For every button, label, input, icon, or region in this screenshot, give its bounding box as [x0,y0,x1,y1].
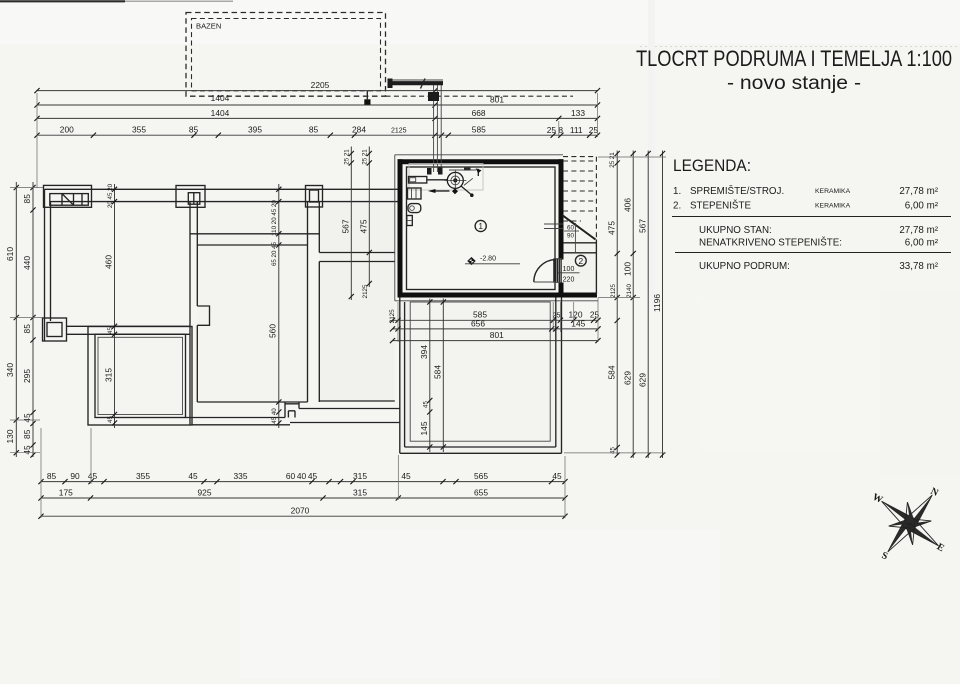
svg-text:335: 335 [234,471,248,481]
svg-text:UKUPNO STAN:: UKUPNO STAN: [699,225,772,236]
svg-text:45: 45 [22,413,32,423]
svg-text:100: 100 [563,266,575,273]
svg-text:6,00 m²: 6,00 m² [905,201,939,212]
svg-text:20 45 20: 20 45 20 [107,183,114,208]
svg-text:315: 315 [104,368,114,382]
svg-text:-2.80: -2.80 [480,256,496,263]
svg-text:145: 145 [419,421,429,435]
svg-text:85: 85 [22,194,32,204]
svg-text:2125: 2125 [610,284,617,298]
svg-text:567: 567 [340,219,350,233]
svg-text:- novo stanje -: - novo stanje - [727,73,861,94]
svg-text:TLOCRT PODRUMA I TEMELJA 1:100: TLOCRT PODRUMA I TEMELJA 1:100 [636,46,952,71]
svg-text:584: 584 [432,365,442,379]
svg-text:394: 394 [419,345,429,359]
svg-text:45 40: 45 40 [271,408,278,424]
svg-text:565: 565 [474,471,488,481]
svg-text:KERAMIKA: KERAMIKA [815,188,851,195]
svg-text:2125: 2125 [391,128,407,135]
svg-text:100: 100 [622,262,632,276]
svg-text:610: 610 [5,247,15,261]
svg-text:2125: 2125 [389,309,396,323]
svg-text:395: 395 [248,125,262,135]
svg-text:1: 1 [478,221,483,231]
svg-text:655: 655 [474,488,488,498]
svg-text:NENATKRIVENO STEPENIŠTE:: NENATKRIVENO STEPENIŠTE: [699,238,842,249]
svg-text:90: 90 [567,233,574,240]
svg-text:45: 45 [107,327,114,334]
svg-text:801: 801 [490,330,504,340]
svg-text:2125: 2125 [362,284,369,298]
svg-text:85: 85 [22,324,32,334]
svg-text:60: 60 [567,225,574,232]
svg-text:460: 460 [104,255,114,269]
svg-text:629: 629 [622,371,632,385]
svg-text:45: 45 [107,416,114,423]
svg-text:130: 130 [5,429,15,443]
svg-text:40: 40 [297,471,307,481]
svg-text:90: 90 [70,471,80,481]
svg-text:801: 801 [490,95,504,105]
svg-text:85: 85 [309,125,319,135]
svg-text:45: 45 [88,471,98,481]
svg-text:1404: 1404 [211,93,230,103]
svg-text:45: 45 [308,471,318,481]
svg-text:111: 111 [570,125,583,135]
svg-text:SPREMIŠTE/STROJ.: SPREMIŠTE/STROJ. [690,186,784,197]
svg-text:45: 45 [22,445,32,455]
svg-text:315: 315 [353,488,367,498]
svg-text:133: 133 [571,108,585,118]
svg-text:1.: 1. [673,186,681,197]
svg-text:STEPENIŠTE: STEPENIŠTE [690,201,751,212]
svg-text:220: 220 [563,277,575,284]
svg-text:475: 475 [358,219,368,233]
svg-text:567: 567 [637,219,647,233]
svg-text:110 20 45 20: 110 20 45 20 [271,200,278,236]
svg-text:45: 45 [422,401,429,408]
svg-text:UKUPNO PODRUM:: UKUPNO PODRUM: [699,261,790,272]
svg-text:629: 629 [637,373,647,387]
svg-text:355: 355 [136,471,150,481]
svg-text:45: 45 [188,471,198,481]
svg-text:175: 175 [59,488,73,498]
svg-text:85: 85 [47,471,57,481]
svg-text:200: 200 [60,125,74,135]
svg-text:284: 284 [352,125,366,135]
svg-text:315: 315 [353,471,367,481]
svg-text:2070: 2070 [291,506,310,516]
svg-text:2: 2 [578,256,583,266]
svg-text:25 21: 25 21 [609,152,616,168]
svg-text:60: 60 [286,471,296,481]
svg-text:406: 406 [622,198,632,212]
svg-text:1404: 1404 [211,108,230,118]
svg-text:584: 584 [606,365,616,379]
svg-text:85: 85 [22,429,32,439]
svg-text:25: 25 [553,313,561,320]
svg-text:25 21: 25 21 [361,149,368,165]
svg-text:668: 668 [472,108,486,118]
svg-text:440: 440 [22,256,32,270]
svg-text:2205: 2205 [311,80,330,90]
svg-text:33,78 m²: 33,78 m² [899,261,938,272]
svg-text:560: 560 [268,324,278,338]
svg-text:27,78 m²: 27,78 m² [899,186,938,197]
svg-text:355: 355 [132,125,146,135]
svg-text:1196: 1196 [652,294,662,312]
svg-text:6,00 m²: 6,00 m² [905,238,939,249]
svg-text:585: 585 [472,125,486,135]
svg-text:2140: 2140 [626,284,633,298]
svg-text:925: 925 [198,488,212,498]
svg-text:KERAMIKA: KERAMIKA [815,203,851,210]
svg-text:475: 475 [606,221,616,235]
svg-text:45: 45 [401,471,411,481]
svg-text:LEGENDA:: LEGENDA: [673,156,751,175]
svg-text:25: 25 [589,125,599,135]
svg-text:45: 45 [552,471,562,481]
svg-text:25 21: 25 21 [343,149,350,165]
svg-text:295: 295 [22,369,32,383]
svg-text:340: 340 [5,363,15,377]
svg-text:BAZEN: BAZEN [196,22,221,31]
svg-text:656: 656 [471,318,485,328]
svg-text:85: 85 [189,125,199,135]
svg-text:27,78 m²: 27,78 m² [899,225,938,236]
svg-text:25: 25 [547,125,557,135]
svg-text:2.: 2. [673,201,681,212]
svg-text:65 20 45: 65 20 45 [271,241,278,266]
